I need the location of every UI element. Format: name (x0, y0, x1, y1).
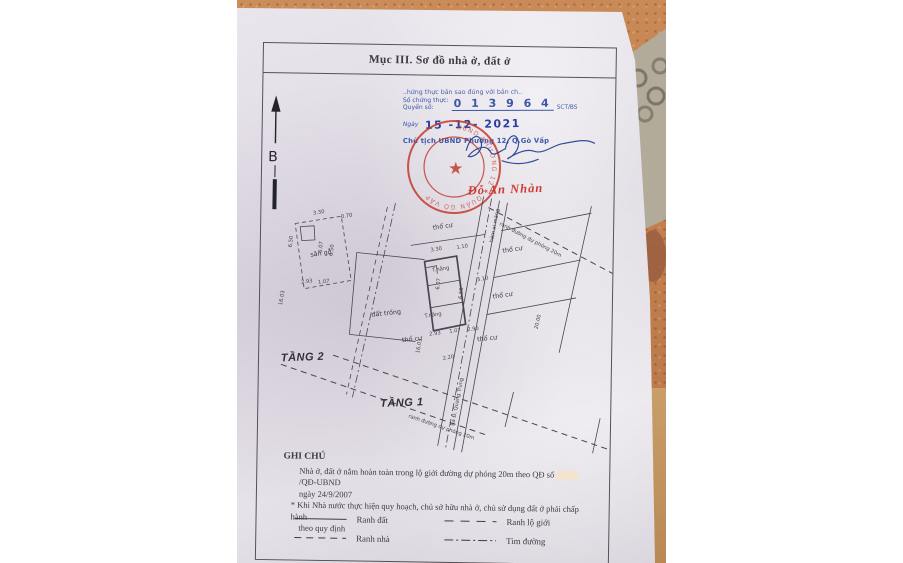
area-label-terrace: sân gỗ (310, 247, 332, 259)
legend-row-2: Ranh nhà Tim đường (294, 533, 594, 548)
legend-line-dash-dot (444, 540, 496, 541)
house-label-tnang-2: T.nắng (423, 310, 442, 320)
legend-line-dash (294, 538, 346, 539)
boundary-tick-1 (505, 392, 514, 427)
long-dash-line-sample (444, 519, 496, 524)
alley-edge-line (462, 202, 508, 453)
empty-lot-bottom (349, 334, 415, 341)
dim-house-1603: 16.03 (415, 338, 424, 354)
area-label-residential-1: thổ cư (432, 220, 454, 232)
house-divider-1 (428, 280, 460, 287)
planned-road-label-top: ranh đường dự phóng 20m (498, 220, 563, 259)
dim-terrace-650b: 6.50 (329, 244, 336, 256)
road-boundary-top (487, 208, 616, 280)
certification-number-suffix: SCT/BS (557, 105, 578, 111)
certification-number: 0 1 3 9 6 4 (452, 97, 554, 111)
legend-label-road-axis: Tim đường (506, 536, 545, 547)
certification-stamp-block: ..hứng thực bản sao đúng với bản ch.. Số… (403, 89, 613, 145)
terrace-outline (294, 216, 352, 290)
legend-label-road-corridor: Ranh lộ giới (506, 517, 550, 528)
legend-item-land-boundary: Ranh đất (294, 514, 444, 526)
certification-number-row: Số chứng thực: Quyển số: 0 1 3 9 6 4 SCT… (403, 97, 613, 111)
dim-parcel-2000: 20.00 (534, 314, 543, 330)
north-arrow-head (272, 97, 280, 111)
parcel-line-3 (487, 297, 576, 316)
authority-line: Chủ tịch UBND Phường 12, Q.Gò Vấp (403, 137, 613, 145)
dim-house-650: 6.50 (458, 287, 465, 299)
legend-label-land-boundary: Ranh đất (356, 515, 388, 525)
legend-item-road-axis: Tim đường (444, 535, 594, 547)
quyen-so-label: Quyển số: (403, 104, 449, 111)
house-outline (423, 256, 466, 332)
seal-star-icon: ★ (448, 159, 464, 178)
house-divider-2 (431, 302, 463, 309)
certification-line: ..hứng thực bản sao đúng với bản ch.. (403, 89, 613, 96)
planned-road-label-bottom: ranh đường dự phóng 20m (407, 413, 475, 442)
dim-house-107: 1.07 (449, 328, 461, 335)
north-tail-bar (272, 179, 276, 209)
terrace-notch (300, 226, 315, 241)
boundary-tick-2 (593, 418, 601, 453)
date-stamp: 15 -12- 2021 (424, 117, 520, 132)
plan-lines (280, 193, 616, 454)
empty-lot-left (349, 252, 356, 334)
dim-terrace-1603: 16.03 (278, 290, 287, 306)
right-boundary-line (559, 206, 591, 353)
mat-ring (653, 59, 666, 73)
photo-region: Mục III. Sơ đồ nhà ở, đất ở ..hứng thực … (237, 0, 666, 563)
dim-house-293: 2.93 (429, 330, 441, 337)
empty-lot-top (357, 252, 425, 259)
north-arrow-shaft (275, 107, 276, 143)
area-label-residential-5: thổ cư (477, 332, 499, 343)
dim-terrace-293: 2.93 (301, 278, 313, 285)
floor1-caption: TẦNG 1 (380, 395, 424, 410)
dash-line-sample (294, 536, 346, 541)
legend-item-road-corridor: Ranh lộ giới (444, 516, 594, 528)
alley-name-label: hẻm xi măng (488, 208, 501, 243)
parcel-line-above-house (411, 233, 485, 246)
document-title-box: Mục III. Sơ đồ nhà ở, đất ở (264, 43, 616, 79)
north-label: B (268, 149, 278, 165)
road-boundary-floor2 (280, 364, 486, 434)
parcel-line-2 (493, 259, 580, 279)
dim-terrace-650: 6.50 (288, 236, 295, 248)
floor2-alley-centerline (352, 202, 395, 398)
area-label-residential-2: thổ cư (502, 243, 524, 255)
signer-name: Đỗ An Nhàn (467, 179, 597, 199)
dim-house-330: 3.30 (430, 246, 442, 254)
alley-left-line (438, 196, 484, 447)
certification-labels: Số chứng thực: Quyển số: (403, 97, 449, 111)
photo-of-document: Mục III. Sơ đồ nhà ở, đất ở ..hứng thực … (0, 0, 903, 563)
note-line-1-suffix: /QĐ-UBND (299, 477, 341, 488)
legend-line-solid (295, 519, 347, 520)
dim-terrace-070: 0.70 (341, 212, 353, 220)
parcel-line-1 (501, 212, 591, 232)
area-label-residential-4: thổ cư (402, 333, 424, 344)
road-boundary-floor1 (332, 355, 616, 451)
legend-label-house-boundary: Ranh nhà (356, 534, 390, 545)
exit-street-label: Ra Đ. Quang Trung (450, 377, 465, 426)
house-label-tnang-1: T.nắng (431, 264, 450, 274)
dim-terrace-107: 1.07 (318, 278, 330, 285)
dash-dot-line-sample (444, 538, 496, 543)
area-label-empty-lot: đất trống (371, 308, 401, 319)
mat-ring (638, 107, 652, 121)
floor2-alley-edge (346, 206, 387, 395)
dim-house-110: 1.10 (456, 243, 468, 251)
dim-house-290: 2.90 (467, 326, 479, 333)
ngay-label: Ngày (403, 121, 419, 128)
page-title: Mục III. Sơ đồ nhà ở, đất ở (369, 53, 511, 67)
solid-line-sample (294, 517, 346, 522)
dim-house-607: 6.07 (435, 278, 442, 290)
dim-terrace-330: 3.30 (313, 209, 325, 217)
north-arrow: B (267, 97, 280, 209)
alley-center-line (446, 198, 492, 449)
legend: Ranh đất Ranh lộ giới Ranh nhà Tim đường (294, 514, 595, 557)
dim-terrace-607: 6.07 (318, 241, 325, 253)
floor2-caption: TẦNG 2 (281, 350, 325, 365)
date-row: Ngày 15 -12- 2021 (403, 118, 613, 131)
legend-line-long-dash (445, 521, 497, 522)
alley-right-line (454, 200, 500, 451)
area-label-residential-3: thổ cư (492, 289, 514, 301)
dim-alley-220: 2.20 (442, 354, 454, 362)
mat-ring (648, 88, 664, 104)
house-inner-detail (426, 266, 437, 274)
document-frame: Mục III. Sơ đồ nhà ở, đất ở ..hứng thực … (255, 42, 617, 563)
legend-item-house-boundary: Ranh nhà (294, 533, 444, 545)
dim-alley-310: 3.10 (476, 275, 489, 283)
so-chung-thuc-label: Số chứng thực: (403, 97, 449, 104)
redaction-blob (555, 471, 579, 480)
